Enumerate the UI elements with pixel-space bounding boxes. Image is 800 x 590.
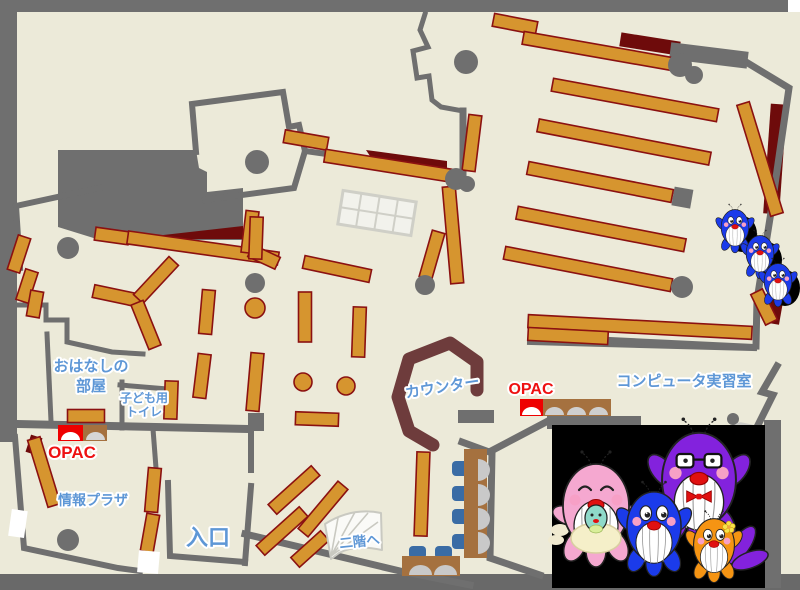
storytelling-room-label-2: 部屋	[76, 377, 106, 395]
wall-segment	[17, 424, 250, 429]
bookshelf	[249, 217, 263, 259]
opac-right-label: OPAC	[508, 381, 553, 398]
bookshelf	[145, 468, 162, 513]
round-table	[337, 377, 355, 395]
pillar	[415, 275, 435, 295]
pillar	[685, 66, 703, 84]
corner-gap	[788, 0, 800, 12]
bookshelf	[299, 292, 312, 342]
outer-wall-top	[0, 0, 788, 12]
computer-room-label: コンピュータ実習室	[616, 372, 751, 390]
bookshelf	[352, 307, 367, 357]
wall-segment	[153, 429, 156, 468]
pillar	[454, 50, 478, 74]
entrance-label: 入口	[186, 525, 230, 550]
children-toilet-label: 子ども用	[120, 391, 168, 405]
pillar	[671, 276, 693, 298]
bookshelf	[295, 412, 338, 426]
storytelling-room-label: おはなしの	[53, 358, 128, 375]
pillar	[245, 150, 269, 174]
bookshelf	[68, 410, 105, 423]
library-floor-map: おはなしの 部屋 子ども用 トイレ 情報プラザ 入口 二階へ カウンター OPA…	[0, 0, 800, 590]
pillar	[57, 529, 79, 551]
bookshelf	[199, 290, 216, 335]
floor-map-canvas: おはなしの 部屋 子ども用 トイレ 情報プラザ 入口 二階へ カウンター OPA…	[0, 0, 800, 590]
bookshelf	[414, 452, 430, 536]
info-plaza-label: 情報プラザ	[58, 492, 128, 508]
opac-left-label: OPAC	[48, 443, 96, 462]
round-table	[245, 298, 265, 318]
children-toilet-label-2: トイレ	[126, 405, 162, 419]
round-table	[294, 373, 312, 391]
opac-terminal-left	[58, 425, 107, 441]
wall-right-of-photo	[764, 420, 781, 588]
pillar	[459, 176, 475, 192]
opac-terminal-right	[520, 399, 611, 416]
pillar	[57, 237, 79, 259]
pillar	[245, 273, 265, 293]
